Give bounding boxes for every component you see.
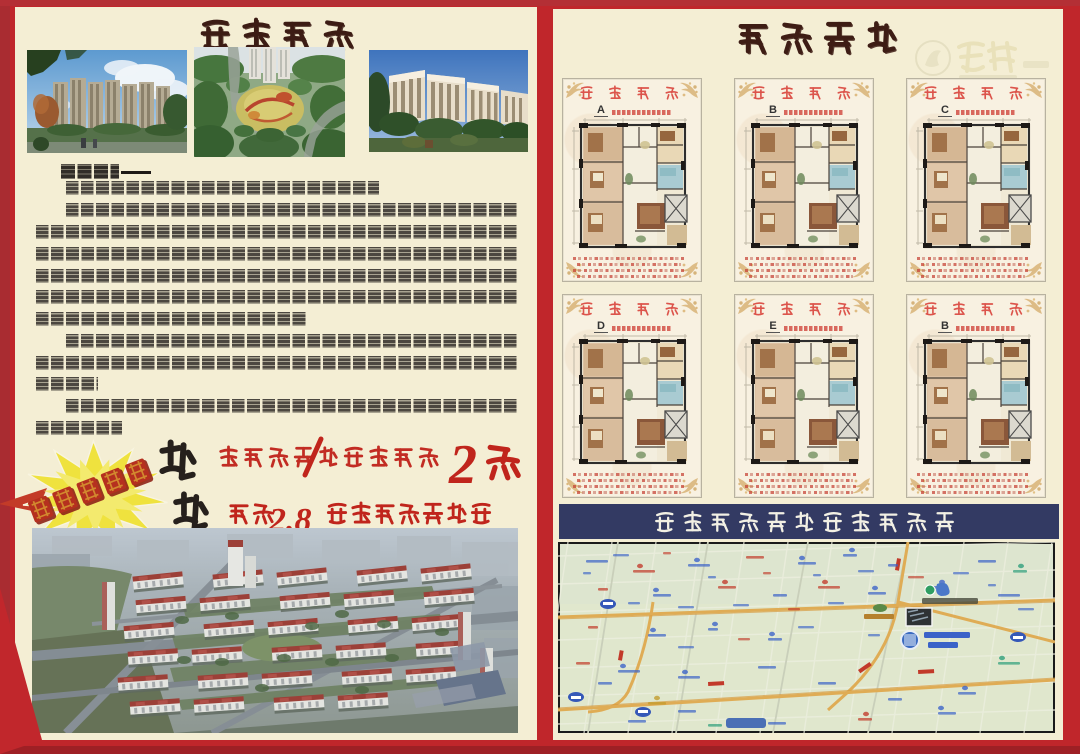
svg-text:2: 2 xyxy=(448,434,477,496)
